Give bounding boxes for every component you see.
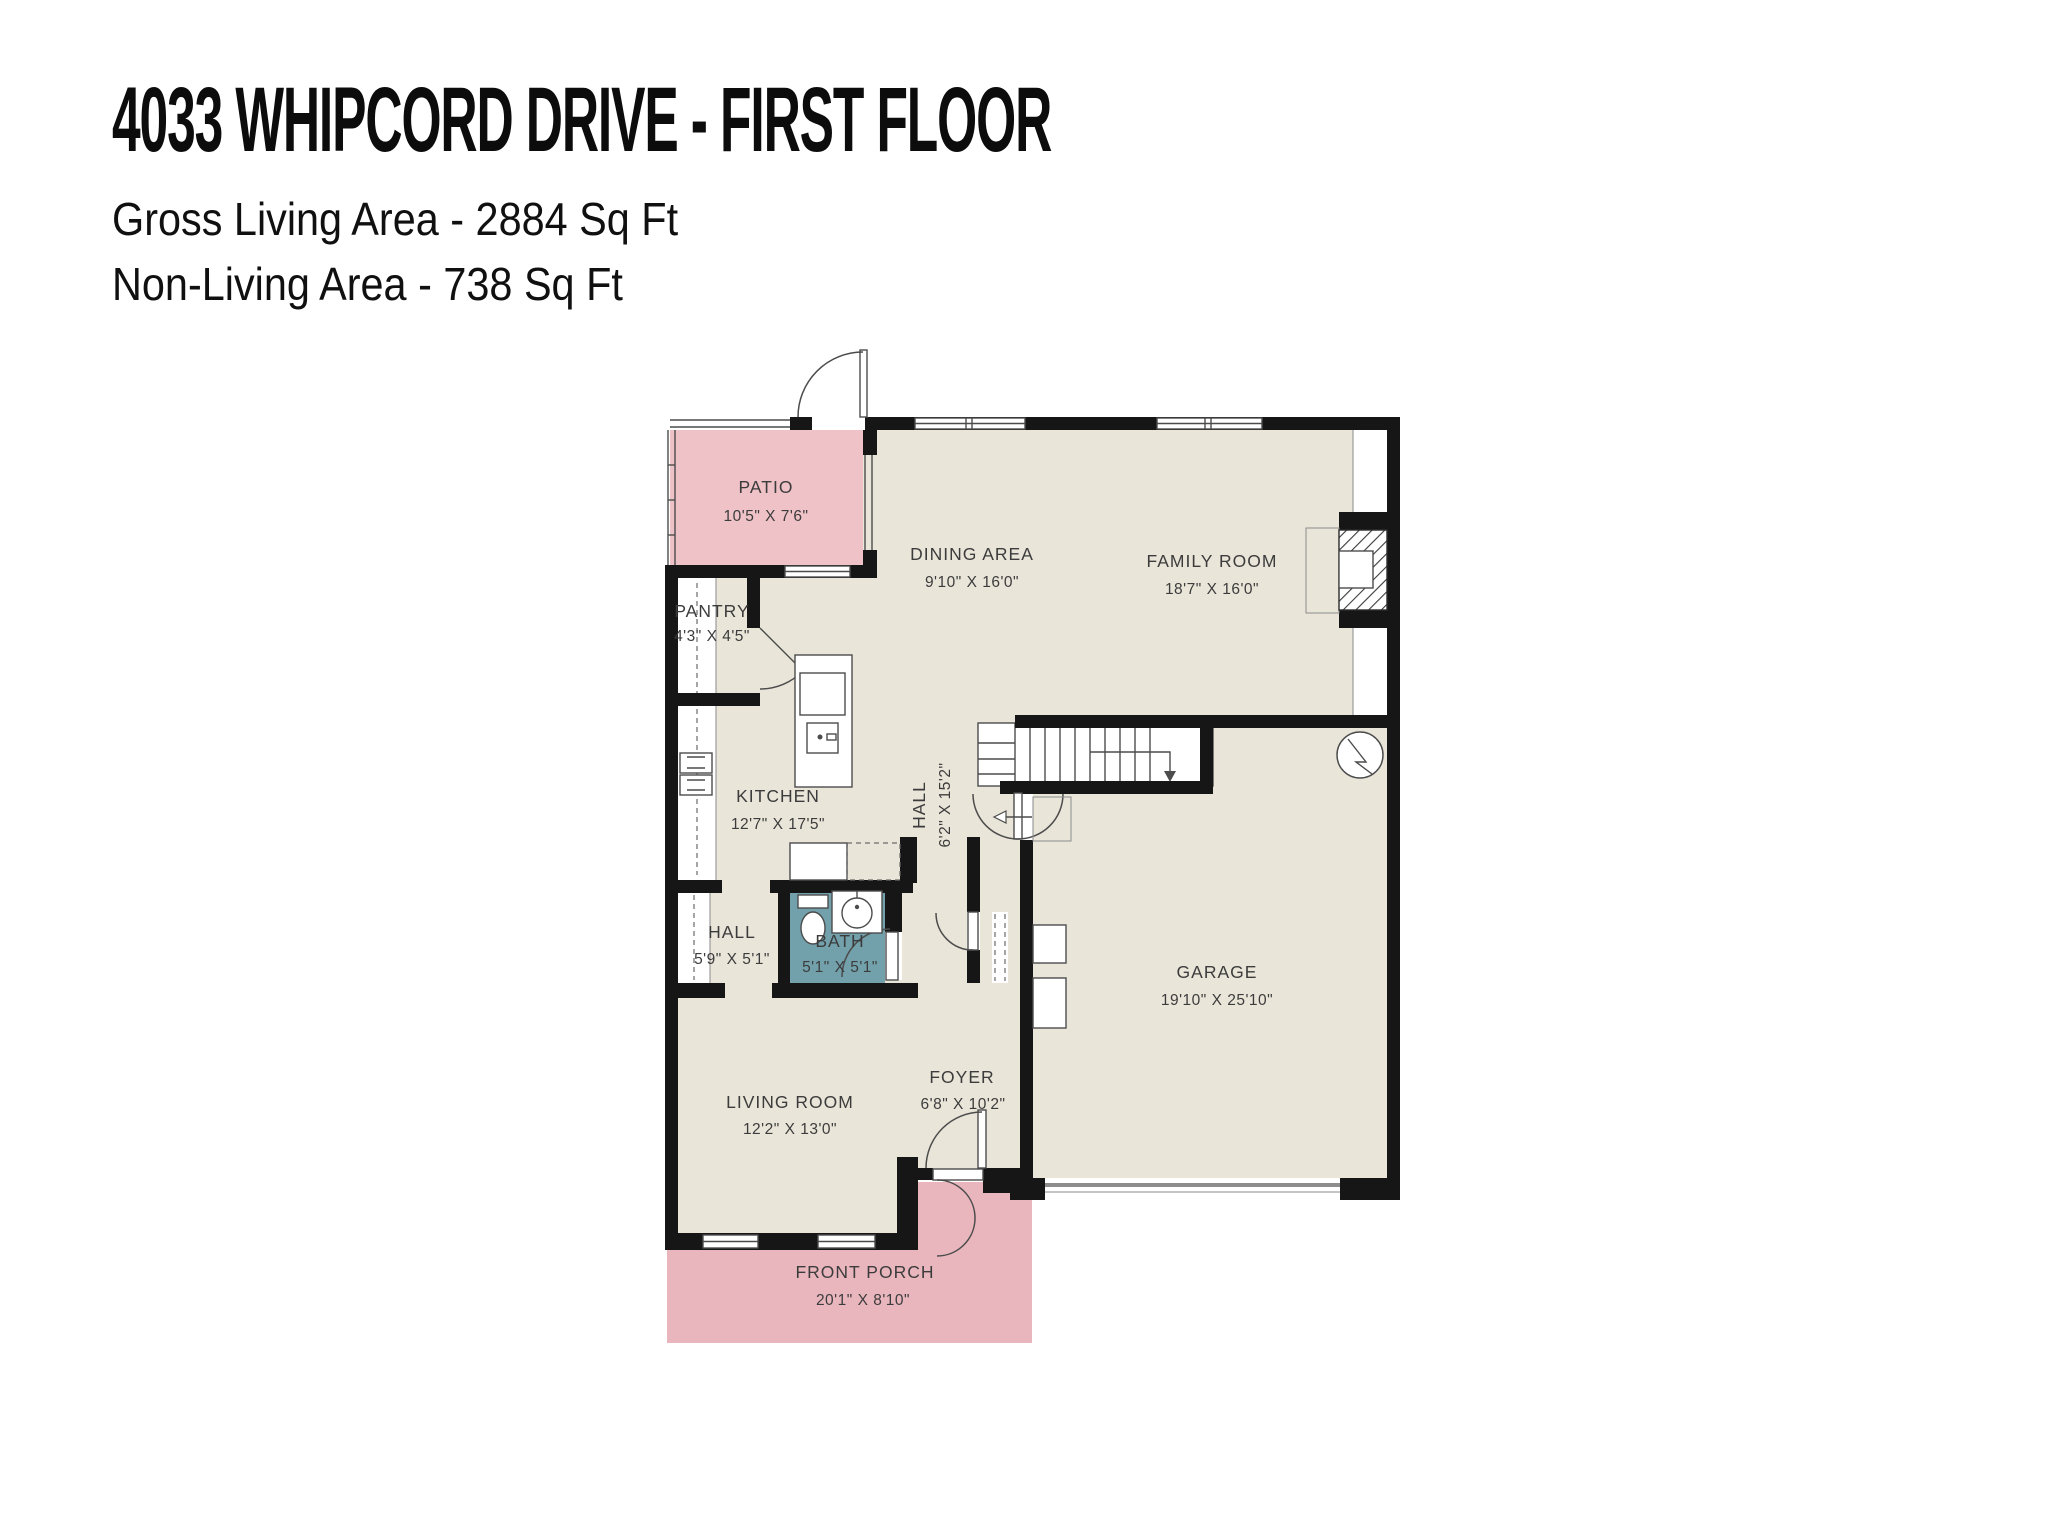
svg-text:FAMILY ROOM: FAMILY ROOM (1147, 551, 1278, 571)
svg-text:10'5" X 7'6": 10'5" X 7'6" (724, 508, 809, 525)
svg-text:GARAGE: GARAGE (1177, 962, 1258, 982)
svg-text:20'1" X 8'10": 20'1" X 8'10" (816, 1292, 910, 1309)
svg-text:5'9" X 5'1": 5'9" X 5'1" (694, 951, 770, 968)
svg-text:PATIO: PATIO (739, 477, 794, 497)
header: 4033 WHIPCORD DRIVE - FIRST FLOOR Gross … (112, 72, 1789, 169)
svg-text:HALL: HALL (708, 922, 756, 942)
water-heater (1033, 925, 1066, 963)
staircase (978, 723, 1213, 786)
svg-text:6'8" X 10'2": 6'8" X 10'2" (921, 1096, 1006, 1113)
svg-text:9'10" X 16'0": 9'10" X 16'0" (925, 574, 1019, 591)
furnace (1033, 978, 1066, 1028)
svg-text:4'3" X 4'5": 4'3" X 4'5" (674, 628, 750, 645)
floor-plan-drawing: PATIO 10'5" X 7'6" DINING AREA 9'10" X 1… (660, 325, 1420, 1365)
svg-text:DINING AREA: DINING AREA (910, 544, 1034, 564)
svg-text:6'2" X 15'2": 6'2" X 15'2" (937, 763, 954, 848)
garage-floor (1020, 728, 1387, 1178)
floor-plan-page: 4033 WHIPCORD DRIVE - FIRST FLOOR Gross … (0, 0, 2048, 1536)
living-room-window-2 (818, 1235, 875, 1248)
firebox (1339, 551, 1373, 588)
svg-text:PANTRY: PANTRY (674, 601, 749, 621)
svg-text:BATH: BATH (815, 931, 864, 951)
living-room-window-1 (703, 1235, 758, 1248)
svg-text:12'7" X 17'5": 12'7" X 17'5" (731, 816, 825, 833)
window-top-1 (915, 418, 1025, 429)
electrical-panel-icon (1337, 732, 1383, 778)
sink-icon (832, 891, 882, 933)
svg-text:5'1" X 5'1": 5'1" X 5'1" (802, 959, 878, 976)
gross-living-area-text: Gross Living Area - 2884 Sq Ft (112, 192, 678, 246)
svg-text:12'2" X 13'0": 12'2" X 13'0" (743, 1121, 837, 1138)
patio-bottom-window (785, 566, 850, 577)
svg-text:HALL: HALL (909, 781, 929, 829)
svg-text:FOYER: FOYER (929, 1067, 994, 1087)
kitchen-island (795, 655, 852, 787)
svg-text:18'7" X 16'0": 18'7" X 16'0" (1165, 581, 1259, 598)
patio-floor (670, 430, 863, 565)
svg-text:LIVING ROOM: LIVING ROOM (726, 1092, 854, 1112)
page-title: 4033 WHIPCORD DRIVE - FIRST FLOOR (112, 72, 1051, 169)
svg-text:19'10" X 25'10": 19'10" X 25'10" (1161, 992, 1273, 1009)
svg-text:KITCHEN: KITCHEN (736, 786, 820, 806)
non-living-area-text: Non-Living Area - 738 Sq Ft (112, 257, 623, 311)
window-top-2 (1157, 418, 1262, 429)
svg-text:FRONT PORCH: FRONT PORCH (795, 1262, 934, 1282)
